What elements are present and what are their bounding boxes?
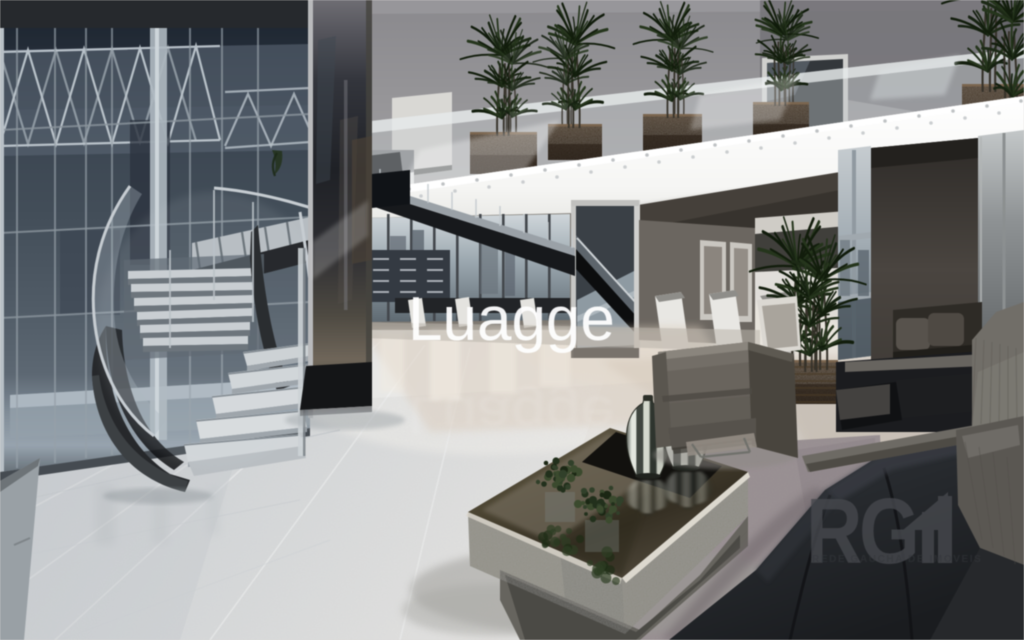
svg-text:Luagge: Luagge	[408, 385, 615, 444]
svg-text:RG: RG	[806, 480, 916, 584]
svg-text:REDE GAUCHA DE IMOVEIS: REDE GAUCHA DE IMOVEIS	[812, 554, 982, 565]
svg-text:Luagge: Luagge	[408, 285, 615, 354]
